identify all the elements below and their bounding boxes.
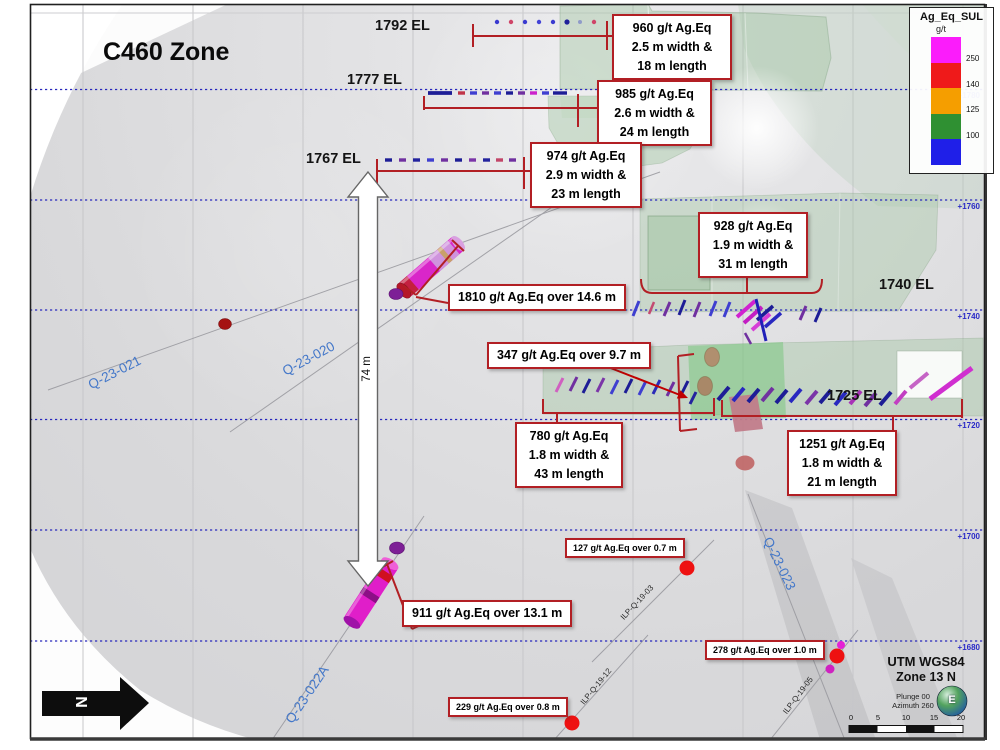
scale-tick-10: 10 (902, 713, 910, 722)
measure-label-74m: 74 m (361, 351, 375, 387)
callout-780: 780 g/t Ag.Eq 1.8 m width & 43 m length (515, 422, 623, 488)
callout-347: 347 g/t Ag.Eq over 9.7 m (487, 342, 651, 369)
callout-928-line1: 928 g/t Ag.Eq (704, 217, 802, 236)
callout-1251-line1: 1251 g/t Ag.Eq (793, 435, 891, 454)
legend-colorbar (931, 37, 961, 165)
legend: Ag_Eq_SUL g/t 250 140 125 100 (909, 7, 994, 174)
highlight-glow (695, 66, 819, 190)
elevation-label-1792: 1792 EL (375, 18, 430, 34)
legend-tick-140: 140 (966, 80, 979, 89)
callout-985: 985 g/t Ag.Eq 2.6 m width & 24 m length (597, 80, 712, 146)
scale-tick-5: 5 (876, 713, 880, 722)
callout-974: 974 g/t Ag.Eq 2.9 m width & 23 m length (530, 142, 642, 208)
legend-color-red (931, 63, 961, 89)
callout-974-line3: 23 m length (536, 185, 636, 204)
legend-tick-250: 250 (966, 54, 979, 63)
callout-928: 928 g/t Ag.Eq 1.9 m width & 31 m length (698, 212, 808, 278)
callout-928-line2: 1.9 m width & (704, 236, 802, 255)
section-view: C460 Zone 1792 EL 1777 EL 1767 EL 1740 E… (0, 0, 1000, 750)
map-azimuth: Azimuth 260 (884, 701, 942, 710)
intercept-dot-purple (389, 289, 403, 300)
legend-color-blue (931, 139, 961, 165)
scale-tick-15: 15 (930, 713, 938, 722)
callout-960-line1: 960 g/t Ag.Eq (618, 19, 726, 38)
grid-elevation-1720: +1720 (946, 421, 980, 430)
elevation-label-1725: 1725 EL (827, 388, 882, 404)
map-datum: UTM WGS84 (886, 654, 966, 669)
elevation-label-1740: 1740 EL (879, 277, 934, 293)
grid-elevation-1740: +1740 (946, 312, 980, 321)
section-graphics (0, 0, 1000, 750)
callout-1810: 1810 g/t Ag.Eq over 14.6 m (448, 284, 626, 311)
callout-960-line3: 18 m length (618, 57, 726, 76)
elevation-label-1767: 1767 EL (306, 151, 361, 167)
legend-color-orange (931, 88, 961, 114)
callout-985-line3: 24 m length (603, 123, 706, 142)
callout-960: 960 g/t Ag.Eq 2.5 m width & 18 m length (612, 14, 732, 80)
grid-elevation-1700: +1700 (946, 532, 980, 541)
callout-974-line1: 974 g/t Ag.Eq (536, 147, 636, 166)
legend-color-magenta (931, 37, 961, 63)
legend-unit: g/t (936, 24, 993, 34)
map-zone: Zone 13 N (886, 670, 966, 684)
legend-title: Ag_Eq_SUL (910, 11, 993, 23)
callout-1251: 1251 g/t Ag.Eq 1.8 m width & 21 m length (787, 430, 897, 496)
callout-960-line2: 2.5 m width & (618, 38, 726, 57)
callout-278: 278 g/t Ag.Eq over 1.0 m (705, 640, 825, 660)
callout-780-line3: 43 m length (521, 465, 617, 484)
scale-tick-20: 20 (957, 713, 965, 722)
callout-1251-line3: 21 m length (793, 473, 891, 492)
callout-928-line3: 31 m length (704, 255, 802, 274)
callout-985-line2: 2.6 m width & (603, 104, 706, 123)
callout-780-line2: 1.8 m width & (521, 446, 617, 465)
callout-780-line1: 780 g/t Ag.Eq (521, 427, 617, 446)
callout-229: 229 g/t Ag.Eq over 0.8 m (448, 697, 568, 717)
grid-elevation-1760: +1760 (946, 202, 980, 211)
elevation-label-1777: 1777 EL (347, 72, 402, 88)
legend-color-green (931, 114, 961, 140)
north-arrow-letter: N (71, 692, 89, 712)
intercept-dot-purple (390, 542, 405, 554)
grid-elevation-1680: +1680 (946, 643, 980, 652)
legend-tick-125: 125 (966, 105, 979, 114)
callout-127: 127 g/t Ag.Eq over 0.7 m (565, 538, 685, 558)
map-plunge: Plunge 00 (884, 692, 942, 701)
callout-1251-line2: 1.8 m width & (793, 454, 891, 473)
legend-tick-100: 100 (966, 131, 979, 140)
scale-bar (849, 726, 963, 733)
callout-974-line2: 2.9 m width & (536, 166, 636, 185)
callout-985-line1: 985 g/t Ag.Eq (603, 85, 706, 104)
page-title: C460 Zone (103, 38, 229, 67)
compass-letter: E (946, 694, 958, 706)
callout-911: 911 g/t Ag.Eq over 13.1 m (402, 600, 572, 627)
scale-tick-0: 0 (849, 713, 853, 722)
